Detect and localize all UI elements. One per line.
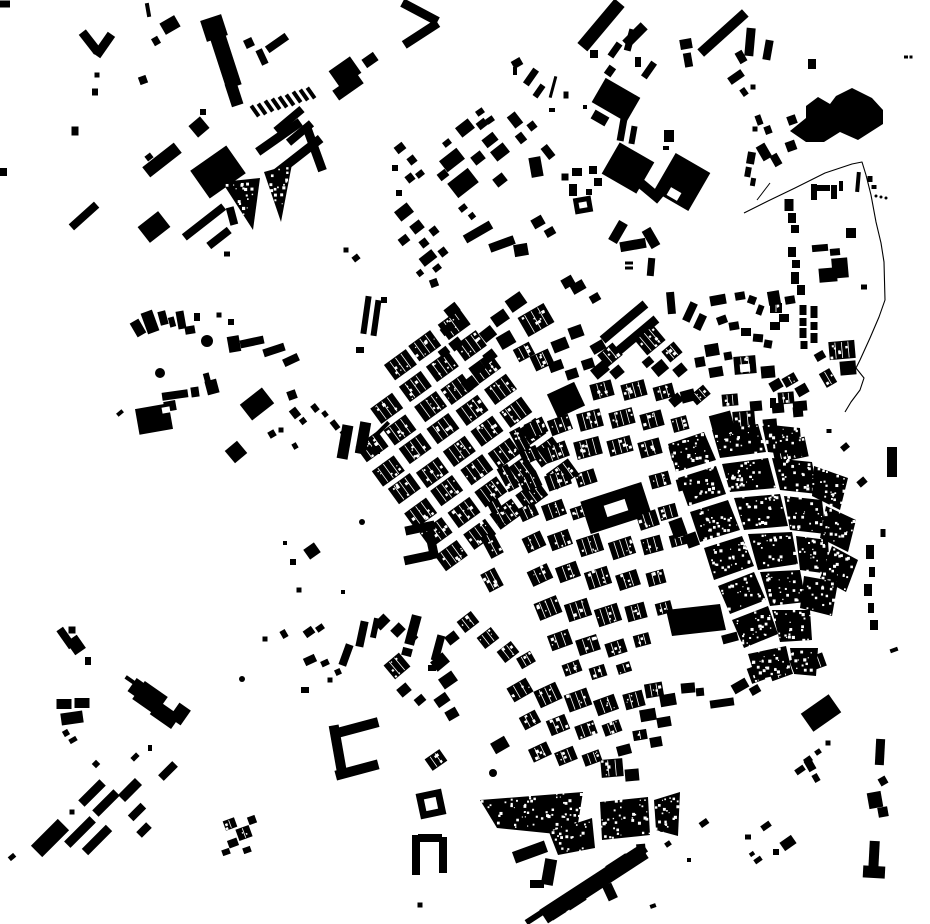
courtyard bbox=[825, 491, 827, 493]
building bbox=[396, 682, 412, 697]
building bbox=[228, 319, 234, 325]
courtyard bbox=[280, 193, 283, 196]
courtyard bbox=[835, 533, 838, 536]
courtyard bbox=[725, 438, 728, 441]
city-block bbox=[784, 496, 826, 534]
courtyard bbox=[761, 521, 764, 524]
courtyard bbox=[793, 580, 796, 583]
building bbox=[609, 364, 625, 379]
courtyard bbox=[788, 536, 791, 539]
courtyard bbox=[808, 587, 810, 589]
courtyard bbox=[274, 188, 277, 191]
courtyard bbox=[773, 446, 775, 448]
building bbox=[753, 127, 758, 132]
building bbox=[438, 670, 458, 689]
courtyard bbox=[226, 184, 229, 187]
building bbox=[402, 19, 440, 48]
courtyard bbox=[565, 813, 567, 815]
courtyard bbox=[752, 663, 753, 664]
building bbox=[839, 360, 856, 375]
courtyard bbox=[788, 636, 791, 639]
courtyard bbox=[704, 450, 705, 451]
courtyard bbox=[700, 525, 702, 527]
courtyard bbox=[752, 479, 753, 480]
courtyard bbox=[783, 436, 785, 438]
building bbox=[341, 590, 345, 594]
courtyard bbox=[695, 442, 697, 444]
building bbox=[910, 56, 913, 59]
courtyard bbox=[246, 195, 248, 197]
courtyard bbox=[563, 816, 565, 818]
courtyard bbox=[785, 613, 786, 614]
courtyard bbox=[563, 793, 565, 795]
courtyard bbox=[769, 593, 772, 596]
courtyard bbox=[663, 808, 666, 811]
courtyard bbox=[760, 501, 763, 504]
building bbox=[506, 678, 533, 703]
building bbox=[444, 707, 459, 722]
courtyard bbox=[775, 442, 777, 444]
courtyard bbox=[824, 511, 826, 513]
building bbox=[656, 716, 672, 728]
courtyard bbox=[580, 793, 583, 796]
courtyard bbox=[772, 436, 775, 439]
building bbox=[334, 668, 342, 676]
building bbox=[768, 378, 783, 393]
courtyard bbox=[824, 534, 825, 535]
building bbox=[519, 710, 541, 731]
courtyard bbox=[822, 577, 825, 580]
courtyard bbox=[749, 425, 750, 426]
courtyard bbox=[806, 487, 809, 490]
courtyard bbox=[796, 489, 798, 491]
courtyard bbox=[557, 835, 559, 837]
courtyard bbox=[252, 194, 253, 195]
courtyard bbox=[524, 804, 526, 806]
courtyard bbox=[737, 478, 740, 481]
courtyard bbox=[818, 513, 819, 514]
courtyard bbox=[708, 510, 709, 511]
courtyard bbox=[808, 542, 810, 544]
city-block bbox=[790, 648, 818, 676]
courtyard bbox=[749, 645, 750, 646]
building bbox=[458, 203, 468, 213]
courtyard bbox=[749, 416, 750, 417]
courtyard bbox=[243, 213, 245, 215]
courtyard bbox=[774, 654, 776, 656]
courtyard bbox=[740, 465, 743, 468]
courtyard bbox=[761, 660, 763, 662]
courtyard bbox=[787, 536, 788, 537]
courtyard bbox=[674, 816, 677, 819]
courtyard bbox=[759, 671, 762, 674]
courtyard bbox=[826, 595, 828, 597]
building bbox=[175, 310, 186, 329]
courtyard bbox=[713, 526, 716, 529]
courtyard bbox=[584, 823, 586, 825]
building bbox=[814, 350, 827, 362]
building bbox=[517, 502, 539, 522]
courtyard bbox=[822, 604, 824, 606]
courtyard bbox=[748, 519, 751, 522]
building bbox=[619, 238, 646, 252]
courtyard bbox=[672, 454, 673, 455]
courtyard bbox=[278, 169, 280, 171]
building bbox=[0, 1, 10, 8]
courtyard bbox=[285, 179, 288, 182]
city-block bbox=[654, 792, 680, 836]
building bbox=[670, 415, 689, 433]
courtyard bbox=[783, 429, 784, 430]
courtyard bbox=[769, 555, 772, 558]
building bbox=[741, 328, 751, 336]
building bbox=[839, 181, 843, 191]
building bbox=[827, 429, 832, 433]
courtyard bbox=[793, 589, 796, 592]
courtyard bbox=[778, 633, 780, 635]
courtyard bbox=[697, 439, 699, 441]
courtyard bbox=[768, 577, 771, 580]
courtyard bbox=[836, 475, 839, 478]
courtyard bbox=[740, 605, 741, 606]
building bbox=[225, 441, 248, 464]
building bbox=[881, 529, 886, 537]
courtyard bbox=[769, 539, 772, 542]
building bbox=[221, 848, 231, 856]
courtyard bbox=[642, 832, 644, 834]
courtyard bbox=[775, 668, 776, 669]
courtyard bbox=[833, 498, 836, 501]
courtyard bbox=[799, 551, 801, 553]
courtyard bbox=[749, 426, 750, 427]
courtyard bbox=[743, 522, 745, 524]
building bbox=[92, 760, 100, 768]
building bbox=[625, 267, 633, 270]
building bbox=[840, 442, 850, 452]
courtyard bbox=[742, 635, 744, 637]
courtyard bbox=[755, 631, 756, 632]
courtyard bbox=[655, 806, 657, 808]
courtyard bbox=[820, 481, 822, 483]
building bbox=[635, 57, 641, 67]
building bbox=[856, 476, 867, 487]
courtyard bbox=[672, 455, 674, 457]
building bbox=[394, 142, 407, 154]
courtyard bbox=[799, 496, 802, 499]
courtyard bbox=[742, 496, 744, 498]
building bbox=[279, 428, 284, 433]
building bbox=[384, 653, 411, 680]
courtyard bbox=[721, 516, 724, 519]
building bbox=[455, 118, 475, 137]
courtyard bbox=[812, 530, 813, 531]
building bbox=[303, 542, 321, 559]
courtyard bbox=[568, 799, 571, 802]
building bbox=[0, 168, 7, 176]
courtyard bbox=[830, 614, 831, 615]
courtyard bbox=[767, 617, 770, 620]
courtyard bbox=[635, 814, 637, 816]
courtyard bbox=[527, 801, 529, 803]
courtyard bbox=[525, 816, 526, 817]
courtyard bbox=[804, 486, 807, 489]
building bbox=[589, 166, 597, 174]
round-building bbox=[885, 197, 888, 200]
building bbox=[816, 185, 830, 191]
courtyard bbox=[805, 537, 806, 538]
building bbox=[800, 328, 807, 338]
courtyard bbox=[776, 648, 777, 649]
courtyard bbox=[792, 636, 795, 639]
courtyard bbox=[786, 436, 788, 438]
courtyard bbox=[777, 305, 779, 307]
building bbox=[575, 634, 601, 656]
courtyard bbox=[488, 806, 490, 808]
courtyard bbox=[620, 800, 622, 802]
courtyard bbox=[556, 794, 557, 795]
courtyard bbox=[707, 484, 708, 485]
building bbox=[861, 285, 867, 290]
courtyard bbox=[741, 642, 744, 645]
building bbox=[206, 227, 231, 249]
courtyard bbox=[717, 533, 720, 536]
courtyard bbox=[695, 453, 696, 454]
building bbox=[762, 39, 773, 60]
courtyard bbox=[811, 652, 812, 653]
courtyard bbox=[762, 600, 764, 602]
courtyard bbox=[820, 572, 821, 573]
courtyard bbox=[797, 526, 799, 528]
building bbox=[664, 130, 674, 142]
building bbox=[786, 114, 798, 126]
building bbox=[589, 292, 602, 304]
building bbox=[162, 389, 189, 401]
building bbox=[649, 903, 656, 909]
courtyard bbox=[758, 651, 759, 652]
courtyard bbox=[845, 558, 848, 561]
courtyard bbox=[632, 813, 635, 816]
building bbox=[404, 614, 421, 646]
courtyard bbox=[724, 446, 727, 449]
courtyard bbox=[781, 507, 783, 509]
building bbox=[184, 325, 195, 335]
building bbox=[800, 318, 807, 326]
courtyard bbox=[807, 484, 809, 486]
courtyard bbox=[703, 524, 704, 525]
building bbox=[401, 647, 413, 657]
building bbox=[267, 429, 277, 439]
courtyard bbox=[701, 511, 704, 514]
courtyard bbox=[793, 552, 796, 555]
building bbox=[747, 295, 757, 305]
courtyard bbox=[744, 594, 747, 597]
building bbox=[118, 778, 142, 802]
building bbox=[415, 169, 425, 179]
courtyard bbox=[693, 447, 694, 448]
building bbox=[868, 176, 873, 182]
courtyard bbox=[758, 471, 760, 473]
courtyard bbox=[559, 842, 562, 845]
courtyard-cutout bbox=[424, 797, 438, 811]
building bbox=[666, 292, 676, 315]
building bbox=[392, 165, 398, 171]
courtyard bbox=[754, 452, 757, 455]
courtyard bbox=[785, 588, 787, 590]
building bbox=[811, 306, 818, 318]
courtyard bbox=[795, 513, 796, 514]
courtyard bbox=[791, 572, 793, 574]
courtyard bbox=[689, 502, 692, 505]
building bbox=[788, 213, 796, 223]
courtyard bbox=[552, 831, 555, 834]
courtyard bbox=[763, 562, 765, 564]
courtyard bbox=[796, 484, 799, 487]
building bbox=[320, 659, 330, 668]
courtyard bbox=[785, 476, 787, 478]
building bbox=[279, 629, 288, 639]
building bbox=[779, 835, 796, 851]
courtyard bbox=[490, 804, 492, 806]
courtyard bbox=[767, 564, 769, 566]
courtyard bbox=[778, 660, 779, 661]
courtyard bbox=[799, 437, 801, 439]
courtyard bbox=[613, 827, 615, 829]
building bbox=[547, 529, 573, 552]
building bbox=[217, 313, 222, 318]
building bbox=[533, 84, 546, 99]
building bbox=[586, 189, 592, 195]
courtyard bbox=[238, 200, 241, 203]
building bbox=[625, 262, 633, 265]
building bbox=[697, 9, 748, 57]
courtyard bbox=[505, 801, 507, 803]
building bbox=[549, 108, 555, 112]
courtyard bbox=[794, 427, 797, 430]
courtyard bbox=[779, 637, 780, 638]
courtyard bbox=[761, 424, 763, 426]
building bbox=[227, 838, 239, 849]
courtyard bbox=[829, 602, 831, 604]
building bbox=[418, 834, 442, 842]
courtyard bbox=[606, 769, 608, 771]
courtyard bbox=[824, 481, 826, 483]
building bbox=[591, 110, 610, 127]
building bbox=[439, 837, 447, 873]
courtyard bbox=[481, 800, 484, 803]
courtyard bbox=[762, 535, 764, 537]
courtyard bbox=[746, 547, 748, 549]
courtyard bbox=[766, 575, 768, 577]
courtyard bbox=[756, 500, 757, 501]
building bbox=[315, 623, 325, 633]
courtyard bbox=[758, 518, 760, 520]
courtyard bbox=[614, 809, 616, 811]
courtyard bbox=[810, 669, 813, 672]
courtyard bbox=[653, 689, 655, 691]
courtyard bbox=[728, 487, 731, 490]
courtyard bbox=[566, 850, 567, 851]
courtyard bbox=[746, 503, 748, 505]
building bbox=[505, 291, 528, 313]
building bbox=[814, 748, 822, 756]
building bbox=[846, 228, 856, 238]
building bbox=[85, 657, 91, 665]
courtyard bbox=[560, 797, 561, 798]
building bbox=[800, 305, 807, 315]
building bbox=[194, 313, 200, 321]
courtyard bbox=[807, 639, 809, 641]
courtyard bbox=[271, 174, 274, 177]
round-building bbox=[658, 824, 666, 832]
building bbox=[811, 322, 818, 330]
courtyard bbox=[749, 476, 751, 478]
building bbox=[406, 154, 417, 165]
building bbox=[708, 366, 724, 378]
building bbox=[763, 125, 772, 135]
round-building bbox=[359, 519, 365, 525]
courtyard bbox=[685, 448, 687, 450]
courtyard bbox=[644, 799, 646, 801]
courtyard bbox=[815, 508, 818, 511]
building bbox=[654, 153, 711, 211]
courtyard bbox=[701, 433, 704, 436]
building bbox=[622, 690, 645, 711]
courtyard bbox=[815, 582, 818, 585]
courtyard bbox=[761, 547, 763, 549]
building bbox=[416, 269, 424, 277]
courtyard bbox=[780, 592, 781, 593]
courtyard bbox=[757, 542, 760, 545]
courtyard bbox=[735, 583, 737, 585]
courtyard bbox=[830, 588, 832, 590]
courtyard bbox=[768, 497, 770, 499]
building bbox=[608, 220, 628, 244]
courtyard bbox=[750, 465, 751, 466]
building bbox=[414, 694, 427, 707]
building bbox=[463, 221, 493, 244]
courtyard bbox=[771, 577, 772, 578]
building bbox=[547, 629, 573, 652]
courtyard bbox=[684, 440, 687, 443]
courtyard bbox=[736, 444, 739, 447]
courtyard bbox=[833, 540, 834, 541]
courtyard bbox=[236, 188, 237, 189]
courtyard bbox=[676, 469, 679, 472]
building bbox=[404, 172, 415, 183]
round-building bbox=[201, 335, 213, 347]
courtyard bbox=[818, 468, 821, 471]
courtyard bbox=[846, 576, 848, 578]
building bbox=[704, 343, 720, 357]
building bbox=[303, 626, 316, 638]
courtyard bbox=[247, 198, 249, 200]
building bbox=[136, 822, 152, 838]
building bbox=[492, 172, 508, 187]
building bbox=[240, 388, 274, 421]
building bbox=[763, 339, 772, 348]
courtyard bbox=[793, 471, 796, 474]
courtyard bbox=[687, 456, 689, 458]
courtyard bbox=[718, 491, 720, 493]
courtyard bbox=[556, 797, 558, 799]
building bbox=[693, 313, 707, 331]
building bbox=[437, 246, 448, 257]
courtyard bbox=[724, 518, 726, 520]
courtyard bbox=[737, 486, 740, 489]
courtyard bbox=[277, 187, 279, 189]
building bbox=[242, 846, 252, 854]
courtyard bbox=[832, 493, 834, 495]
